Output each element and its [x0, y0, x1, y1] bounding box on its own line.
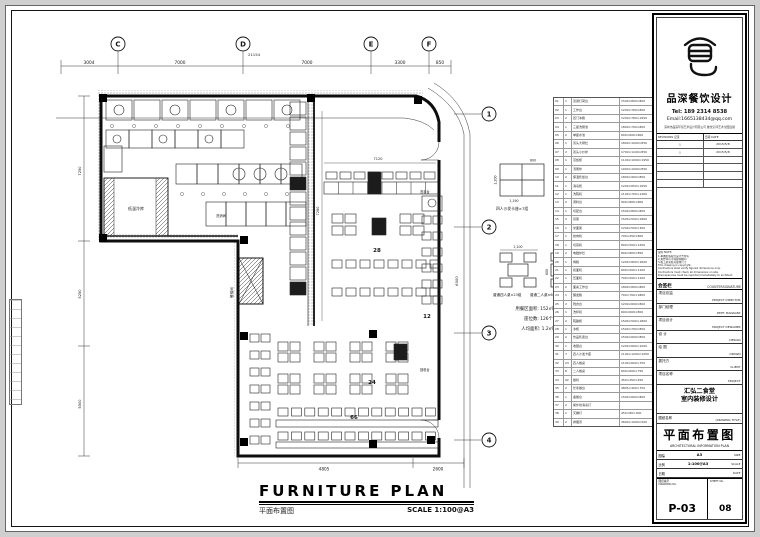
- signature-row: 委托方CLIENT: [657, 358, 742, 372]
- booth-seat: [340, 172, 351, 179]
- furniture: [326, 385, 336, 394]
- table-2p: [250, 436, 259, 444]
- dim-850: 850: [436, 60, 444, 66]
- dishwash-bench: [246, 202, 266, 226]
- furniture: [345, 226, 356, 235]
- schedule-row: 361备餐台1500×600×800: [554, 393, 653, 401]
- meta-row: 日期DATE: [657, 469, 742, 478]
- table-2p: [346, 288, 356, 296]
- dim-7120: 7120: [374, 157, 383, 161]
- table-2p: [346, 260, 356, 268]
- furniture: [400, 226, 411, 235]
- furniture: [326, 374, 336, 383]
- count-right-12: 12: [423, 314, 431, 320]
- equipment-schedule-table: 011双通打荷台1500×800×800021工作台1200×760×80003…: [553, 97, 654, 427]
- table-2p: [261, 351, 270, 359]
- serving-counter-unit: [290, 207, 306, 220]
- table-2p: [261, 385, 270, 393]
- furniture-layer: [99, 94, 442, 448]
- project-label-row: 项目名称 PROJECT: [657, 371, 742, 385]
- partitions: [101, 96, 314, 326]
- drawing-title-label-zh: 图纸名称: [659, 415, 673, 420]
- signature-row: 项目设计PROJECT DESIGNER: [657, 317, 742, 331]
- booth-caption: 四人沙发卡座×7组: [496, 206, 528, 211]
- furniture: [398, 374, 408, 383]
- grid-bubble-1: 1: [487, 111, 492, 119]
- kitchen-bench: [104, 146, 122, 172]
- schedule-row: 211和面机600×500×1100: [554, 267, 653, 275]
- long-bench: [276, 420, 438, 427]
- dim-left-2: 5250: [78, 289, 82, 299]
- count-booth-28: 28: [373, 248, 381, 254]
- serving-counter-unit: [290, 282, 306, 295]
- cold-room: 低温冷库: [104, 178, 168, 236]
- signature-row: 绘 图DRAWN: [657, 344, 742, 358]
- booth-seat: [326, 172, 337, 179]
- dim-4805: 4805: [319, 467, 330, 472]
- wash-area-label: 洗消间: [216, 213, 227, 218]
- schedule-row: 141切配台1500×800×800: [554, 208, 653, 216]
- furniture: [350, 353, 360, 362]
- schedule-row: 381灭蝇灯450×80×300: [554, 410, 653, 418]
- schedule-row: 021工作台1200×760×800: [554, 106, 653, 114]
- feature-table: [372, 218, 386, 235]
- bench-seat: [358, 408, 368, 416]
- table-2p: [388, 288, 398, 296]
- callout-bubble: [110, 124, 113, 127]
- drawing-title-label-row: 图纸名称 (DRAWING TITLE): [657, 414, 742, 424]
- sheet-number-label: SHEET No.: [710, 480, 724, 483]
- booth-seat: [354, 172, 365, 179]
- bench-seat: [385, 408, 395, 416]
- interior-dims: 7120 7280: [316, 111, 436, 321]
- table-2p: [261, 334, 270, 342]
- drawing-title-en: ARCHITECTURAL INFORMATION PLAN: [657, 444, 742, 448]
- table2-dim: 600: [545, 269, 549, 275]
- furniture: [314, 374, 324, 383]
- kitchen-equipment: [246, 100, 272, 120]
- bench-seat: [305, 408, 315, 416]
- dishwash-bench: [226, 202, 246, 226]
- furniture: [278, 353, 288, 362]
- furniture: [350, 385, 360, 394]
- table2-detail: 600 普通二人桌×6组: [530, 253, 554, 297]
- brand-company-line: 深圳市品深环境艺术设计有限公司 餐饮空间艺术全国连锁: [657, 125, 742, 129]
- schedule-row: 041三星洗刷池1800×700×800: [554, 123, 653, 131]
- furniture: [314, 385, 324, 394]
- kitchen-bench: [106, 130, 129, 148]
- kitchen-bench: [129, 130, 152, 148]
- table-2p: [332, 288, 342, 296]
- table-2p: [416, 288, 426, 296]
- callout-bubble: [222, 192, 225, 195]
- feature-table: [394, 344, 407, 360]
- zone-counts: 28 12 24 66: [350, 248, 431, 421]
- schedule-row: 152货架1500×500×1800: [554, 216, 653, 224]
- count-center-24: 24: [368, 380, 376, 386]
- furniture: [278, 342, 288, 351]
- table-2p: [422, 248, 431, 256]
- signature-row: 设 计DESIGN: [657, 331, 742, 345]
- equipment-burner: [159, 135, 167, 143]
- count-bottom-66: 66: [350, 415, 358, 421]
- callout-bubble: [176, 124, 179, 127]
- schedule-row: 3223四人餐桌1100×600×750: [554, 360, 653, 368]
- cold-room-label: 低温冷库: [128, 205, 144, 211]
- bench-seat: [385, 432, 395, 440]
- schedule-row: 111消毒柜1200×650×1950: [554, 182, 653, 190]
- cook-line: [218, 164, 239, 184]
- grid-bubble-C: C: [115, 41, 120, 49]
- callout-bubble: [264, 124, 267, 127]
- serving-counter-unit: [290, 117, 306, 130]
- note-line: Discrepancies must be reported immediate…: [658, 274, 741, 277]
- bench-seat: [318, 432, 328, 440]
- bench-seat: [291, 432, 301, 440]
- schedule-row: 161米面架1200×500×300: [554, 225, 653, 233]
- drawing-page: C D E F 3004 7000 7000 3300 850 21154 1 …: [0, 0, 760, 537]
- serving-counter-unit: [290, 222, 306, 235]
- bench-seat: [318, 408, 328, 416]
- furniture: [386, 385, 396, 394]
- bottom-dims: 4805 2600: [238, 458, 464, 472]
- drawing-title-label-en: (DRAWING TITLE): [715, 418, 740, 422]
- booth-seat: [382, 172, 393, 179]
- dim-6000: 6000: [454, 276, 459, 286]
- grid-bubble-D: D: [240, 41, 246, 49]
- equipment-burner: [113, 135, 121, 143]
- table-2p: [402, 288, 412, 296]
- schedule-row: 081蒸饭柜1100×1000×1950: [554, 157, 653, 165]
- sheet-number-block: 图纸编号 DRAWING No. P-03 SHEET No. 08: [657, 478, 742, 519]
- table-2p: [402, 260, 412, 268]
- furniture: [362, 353, 372, 362]
- equipment-burner: [114, 105, 124, 115]
- kitchen-equipment: [162, 100, 188, 120]
- stat-per-capita: 人均面积: 1.2㎡: [521, 325, 553, 332]
- stat-seats: 座位数: 126个: [524, 315, 553, 322]
- kitchen-bench: [152, 130, 175, 148]
- table-2p: [261, 419, 270, 427]
- furniture: [326, 342, 336, 351]
- grid-bubble-2: 2: [487, 224, 492, 232]
- callout-bubble: [243, 192, 246, 195]
- drawing-sheet: C D E F 3004 7000 7000 3300 850 21154 1 …: [5, 5, 755, 532]
- serving-counter-unit: [290, 192, 306, 205]
- brand-logo-icon: [657, 18, 742, 84]
- table-2p: [250, 419, 259, 427]
- furniture: [413, 214, 424, 223]
- callout-bubble: [286, 124, 289, 127]
- table-2p: [250, 368, 259, 376]
- table4-detail: 1,100 普通四人桌×23组: [493, 245, 538, 297]
- sheet-number-box: SHEET No. 08: [708, 479, 742, 519]
- booth-seat: [396, 172, 407, 179]
- signature-row: 部门经理DEPT. MANAGER: [657, 304, 742, 318]
- schedule-row: 3492餐椅450×450×450: [554, 376, 653, 384]
- schedule-row: 352长条餐台4805×400×750: [554, 385, 653, 393]
- serving-counter-unit: [290, 132, 306, 145]
- furniture: [362, 385, 372, 394]
- drawing-number-box: 图纸编号 DRAWING No. P-03: [657, 479, 708, 519]
- serving-counter-unit: [290, 252, 306, 265]
- callout-bubble: [264, 192, 267, 195]
- schedule-row: 132调料台900×800×800: [554, 199, 653, 207]
- dish-return-label: 回收台: [420, 367, 430, 372]
- kitchen-equipment: [190, 100, 216, 120]
- schedule-row: 372紫外线消毒灯: [554, 402, 653, 410]
- table2-caption: 普通二人桌×6组: [530, 292, 554, 297]
- table-2p: [250, 402, 259, 410]
- cook-line: [260, 164, 281, 184]
- bench-seat: [412, 408, 422, 416]
- drawing-number-label-en: DRAWING No.: [659, 482, 677, 486]
- brand-email: Email:1665138434@qq.com: [657, 117, 742, 122]
- bench-seat: [358, 432, 368, 440]
- schedule-row: 072双头小炒炉1700×1100×850: [554, 149, 653, 157]
- grid-bubble-3: 3: [487, 330, 492, 338]
- grid-bubble-E: E: [369, 41, 374, 49]
- schedule-row: 052单星水池600×600×800: [554, 132, 653, 140]
- kitchen-equipment: [218, 100, 244, 120]
- revisions-header-left: REVISIONS 记录: [657, 134, 704, 140]
- dining-stats: 用餐区面积: 152㎡ 座位数: 126个 人均面积: 1.2㎡: [515, 305, 553, 332]
- long-bench: [276, 442, 438, 448]
- furniture: [362, 342, 372, 351]
- schedule-row: 061双头大锅灶1800×1000×850: [554, 140, 653, 148]
- dishwash-bench: [266, 202, 286, 226]
- table4-dim: 1,100: [513, 245, 522, 249]
- structural-column: [99, 234, 107, 242]
- brand-name: 品深餐饮设计: [657, 90, 742, 105]
- schedule-row: 261洗杯机600×600×800: [554, 309, 653, 317]
- lift-label: 餐梯间: [229, 287, 234, 298]
- callout-bubble: [220, 124, 223, 127]
- bench-seat: [372, 432, 382, 440]
- furniture: [278, 374, 288, 383]
- furniture: [290, 353, 300, 362]
- furniture: [290, 342, 300, 351]
- furniture: [326, 353, 336, 362]
- schedule-row: 121洗碗机1100×700×1400: [554, 191, 653, 199]
- furniture: [314, 342, 324, 351]
- stat-area: 用餐区面积: 152㎡: [515, 305, 553, 312]
- revision-row: △2015/5/8: [657, 141, 742, 149]
- booth-seat: [410, 172, 421, 179]
- dim-7000-b: 7000: [302, 60, 313, 66]
- furniture: [413, 226, 424, 235]
- dim-total-21154: 21154: [248, 52, 261, 57]
- schedule-row: 281冰柜1500×700×850: [554, 326, 653, 334]
- kitchen-bench: [175, 130, 198, 148]
- bench-seat: [332, 432, 342, 440]
- drawing-title: 平面布置图 ARCHITECTURAL INFORMATION PLAN: [657, 424, 742, 452]
- project-name: 汇弘二食堂 室内装修设计: [657, 385, 742, 414]
- schedule-row: 201烤箱1200×800×1600: [554, 258, 653, 266]
- cook-line: [176, 164, 197, 184]
- equipment-burner: [282, 105, 292, 115]
- revision-row: [657, 157, 742, 165]
- serving-counter-unit: [290, 102, 306, 115]
- project-name-line2: 室内装修设计: [657, 396, 742, 405]
- booth-table: [368, 172, 381, 194]
- dim-3300: 3300: [395, 60, 406, 66]
- dim-3004: 3004: [84, 60, 95, 66]
- dishwash-bench: [286, 202, 306, 226]
- schedule-row: 032四门冰箱1200×760×1950: [554, 115, 653, 123]
- booth-detail: 600 1,200 1,190 四人沙发卡座×7组: [494, 159, 545, 212]
- table-2p: [374, 260, 384, 268]
- schedule-row: 102保温售饭台1800×900×850: [554, 174, 653, 182]
- structural-column: [240, 236, 248, 244]
- revision-row: [657, 180, 742, 188]
- bench-seat: [372, 408, 382, 416]
- top-grid-bubbles: C D E F: [111, 37, 436, 51]
- countersign-zh: 会签栏: [658, 283, 672, 289]
- revisions-table: REVISIONS 记录 日期 DATE △2015/5/8△2015/5/8: [657, 133, 742, 188]
- schedule-row: 272碗碟柜1500×500×1800: [554, 317, 653, 325]
- countersign-en: COUNTERSIGNATURE: [707, 285, 741, 289]
- callout-bubble: [132, 124, 135, 127]
- furniture: [314, 353, 324, 362]
- schedule-row: 091汤粥炉1000×1000×850: [554, 166, 653, 174]
- furniture: [398, 385, 408, 394]
- bench-seat: [278, 408, 288, 416]
- countersignature-header: 会签栏 COUNTERSIGNATURE: [657, 278, 742, 290]
- table4-caption: 普通四人桌×23组: [493, 292, 522, 297]
- notes-block: 说明 NOTE:1.本图纸版权归设计方所有2.未经许可不得复制翻印3.施工前须核…: [657, 249, 742, 278]
- drawing-number-value: P-03: [657, 502, 707, 515]
- dim-left-3: 5500: [78, 399, 82, 409]
- wash-basin-label: 洗手台: [420, 189, 430, 194]
- revision-row: △2015/5/8: [657, 149, 742, 157]
- callout-bubble: [154, 124, 157, 127]
- meta-row: 比例1:100@A3SCALE: [657, 460, 742, 469]
- booth-seat: [424, 172, 435, 179]
- bench-seat: [291, 408, 301, 416]
- table-2p: [422, 232, 431, 240]
- callout-bubble: [201, 192, 204, 195]
- table-2p: [250, 334, 259, 342]
- table-2p: [422, 280, 431, 288]
- callout-bubble: [180, 192, 183, 195]
- equipment-burner: [428, 199, 436, 207]
- table-2p: [388, 260, 398, 268]
- booth-dim-bottom: 1,190: [509, 199, 518, 203]
- serving-counter-unit: [290, 177, 306, 190]
- furniture: [332, 226, 343, 235]
- dim-left-1: 7250: [78, 166, 82, 176]
- schedule-row: 392排烟罩3600×1000×500: [554, 419, 653, 427]
- sheet-number-value: 08: [708, 504, 742, 514]
- project-label-en: PROJECT: [728, 379, 741, 383]
- structural-column: [369, 440, 377, 448]
- dim-2600: 2600: [433, 467, 444, 472]
- table-2p: [261, 436, 270, 444]
- table-2p: [360, 288, 370, 296]
- structural-column: [99, 94, 107, 102]
- structural-column: [427, 436, 435, 444]
- table-2p: [374, 288, 384, 296]
- bench-seat: [332, 408, 342, 416]
- schedule-row: 241醒发箱700×700×1800: [554, 292, 653, 300]
- furniture: [345, 214, 356, 223]
- dim-7000-a: 7000: [175, 60, 186, 66]
- furniture: [332, 214, 343, 223]
- bench-seat: [305, 432, 315, 440]
- furniture: [350, 342, 360, 351]
- furniture: [290, 385, 300, 394]
- table-2p: [360, 260, 370, 268]
- caption-title-en: FURNITURE PLAN: [259, 482, 474, 503]
- brand-tel: Tel: 189 2314 8538: [657, 109, 742, 115]
- structural-column: [240, 332, 248, 340]
- caption-title-zh: 平面布置图: [259, 506, 294, 516]
- equipment-burner: [226, 105, 236, 115]
- kitchen-bench: [198, 130, 221, 148]
- table-2p: [261, 402, 270, 410]
- grid-bubble-4: 4: [487, 437, 492, 445]
- dim-7280: 7280: [316, 207, 320, 216]
- booth-dim-top: 600: [530, 159, 536, 163]
- revision-row: [657, 172, 742, 180]
- project-label-zh: 项目名称: [659, 372, 673, 377]
- table-2p: [250, 351, 259, 359]
- kitchen-equipment: [106, 100, 132, 120]
- schedule-row: 011双通打荷台1500×800×800: [554, 98, 653, 106]
- callout-bubble: [242, 124, 245, 127]
- left-dim-chain: 7250 5250 5500: [78, 96, 90, 456]
- furniture: [386, 374, 396, 383]
- table-2p: [332, 260, 342, 268]
- schedule-row: 232面案工作台1800×800×800: [554, 284, 653, 292]
- cook-line: [197, 164, 218, 184]
- kitchen-equipment: [134, 100, 160, 120]
- equipment-burner: [205, 135, 213, 143]
- revision-row: [657, 164, 742, 172]
- bench-seat: [278, 432, 288, 440]
- callout-bubble: [198, 124, 201, 127]
- bench-seat: [399, 408, 409, 416]
- structural-column: [369, 330, 377, 338]
- serving-counter-unit: [290, 237, 306, 250]
- structural-column: [414, 96, 422, 104]
- drawing-caption: FURNITURE PLAN 平面布置图 SCALE 1:100@A3: [259, 482, 474, 516]
- serving-counter-unit: [290, 147, 306, 160]
- title-block: 品深餐饮设计 Tel: 189 2314 8538 Email:16651384…: [652, 13, 747, 524]
- caption-scale: SCALE 1:100@A3: [407, 506, 474, 516]
- grid-bubble-F: F: [427, 41, 432, 49]
- revisions-header-right: 日期 DATE: [704, 134, 742, 140]
- schedule-row: 252残食台1200×600×800: [554, 301, 653, 309]
- project-name-line1: 汇弘二食堂: [657, 388, 742, 397]
- structural-column: [307, 94, 315, 102]
- equipment-burner: [170, 105, 180, 115]
- table-2p: [261, 368, 270, 376]
- furniture: [400, 214, 411, 223]
- schedule-row: 292饮品售卖台1500×600×850: [554, 334, 653, 342]
- furniture: [278, 385, 288, 394]
- bench-seat: [425, 408, 435, 416]
- furniture: [290, 374, 300, 383]
- top-dim-labels: 3004 7000 7000 3300 850 21154: [84, 52, 445, 66]
- serving-counter-unit: [290, 267, 306, 280]
- schedule-row: 181切菜机800×500×1250: [554, 241, 653, 249]
- cook-line: [239, 164, 260, 184]
- meta-row: 图幅A3SIZE: [657, 451, 742, 460]
- schedule-row: 192电磁炉灶800×800×850: [554, 250, 653, 258]
- schedule-row: 171绞肉机700×450×800: [554, 233, 653, 241]
